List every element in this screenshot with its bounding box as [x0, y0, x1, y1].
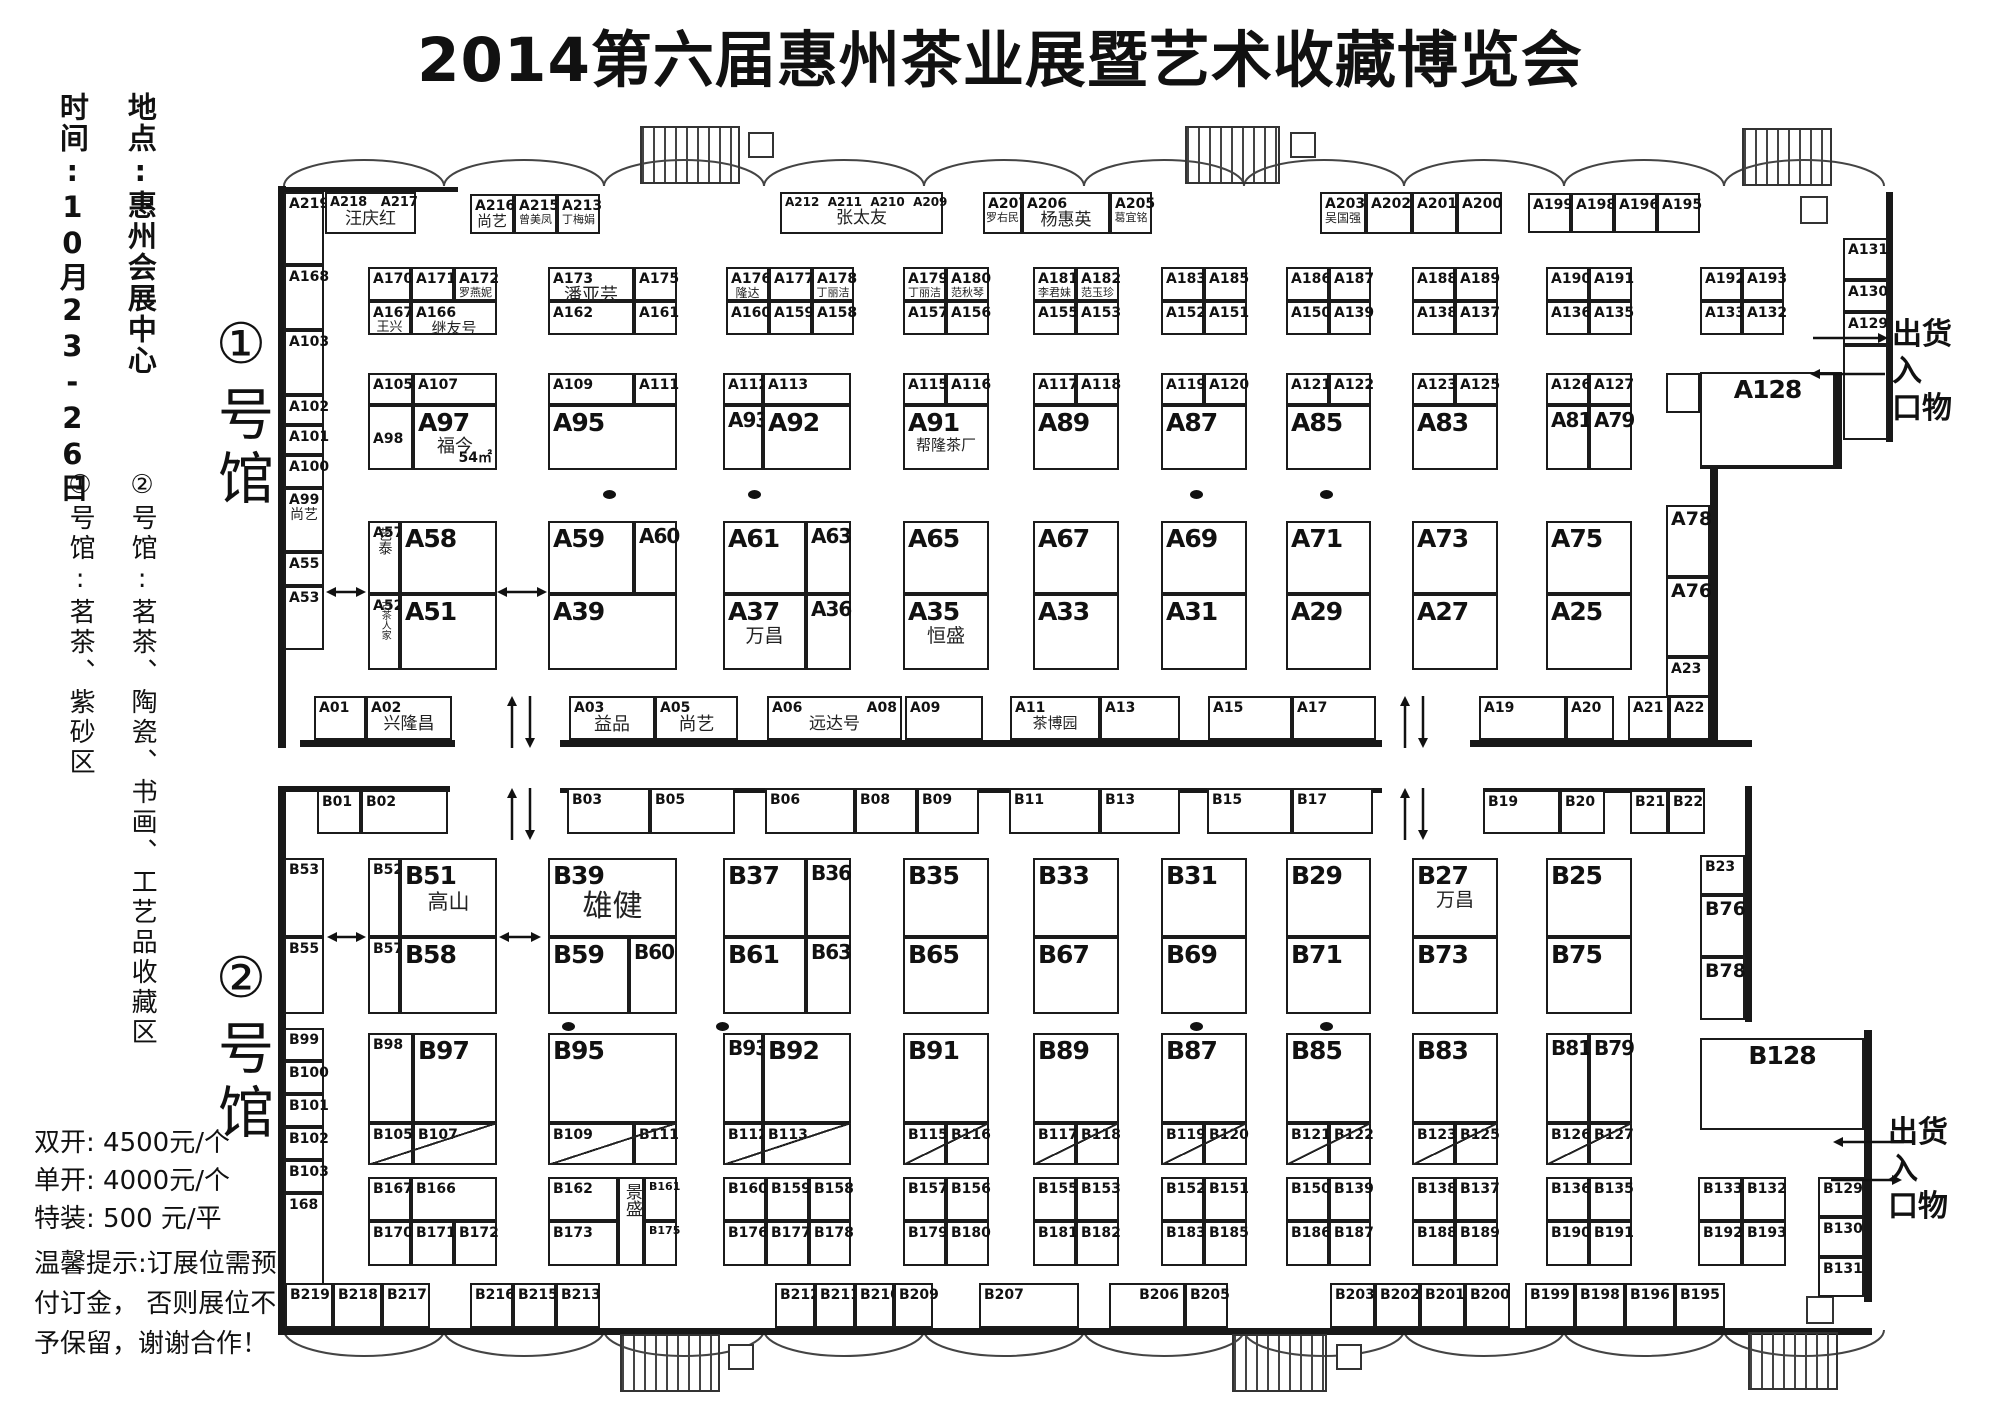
booth-B135: B135 [1589, 1177, 1632, 1221]
booth-A137: A137 [1455, 301, 1498, 335]
booth-B85: B85 [1286, 1033, 1371, 1123]
booth-B115: B115 [903, 1123, 946, 1165]
booth-B23: B23 [1700, 855, 1745, 895]
booth-A35: A35恒盛 [903, 594, 989, 670]
pillar-dot [603, 490, 616, 499]
booth-A177: A177 [769, 267, 812, 301]
booth-B53: B53 [284, 858, 324, 937]
booth-B105: B105 [368, 1123, 413, 1165]
elevator-icon [1806, 1296, 1834, 1324]
booth-B19: B19 [1483, 790, 1560, 834]
booth-A155: A155 [1033, 301, 1076, 335]
booth-A161: A161 [634, 301, 677, 335]
booth-A151: A151 [1204, 301, 1247, 335]
booth-A69: A69 [1161, 521, 1247, 594]
booth-B113: B113 [763, 1123, 851, 1165]
stairs-icon [1748, 1332, 1838, 1390]
booth-B51: B51高山 [400, 858, 497, 937]
booth-B132: B132 [1742, 1177, 1786, 1221]
booth-B111: B111 [634, 1123, 677, 1165]
booking-notice: 温馨提示:订展位需预 付订金， 否则展位不 予保留，谢谢合作！ [34, 1244, 277, 1364]
booth-A201: A201 [1412, 192, 1457, 234]
booth-B75: B75 [1546, 937, 1632, 1014]
booth-A138: A138 [1412, 301, 1455, 335]
booth-A182: A182范玉珍 [1076, 267, 1119, 301]
booth-empty [1666, 373, 1700, 413]
booth-B182: B182 [1076, 1221, 1119, 1266]
booth-empty [1843, 345, 1888, 440]
booth-A189: A189 [1455, 267, 1498, 301]
booth-B33: B33 [1033, 858, 1119, 937]
booth-B210: B210 [855, 1283, 894, 1328]
booth-A52: A52古茶人家 [368, 594, 400, 670]
booth-B83: B83 [1412, 1033, 1498, 1123]
booth-A09: A09 [905, 696, 983, 740]
booth-B138: B138 [1412, 1177, 1455, 1221]
booth-A23: A23 [1666, 657, 1710, 697]
booth-A126: A126 [1546, 373, 1589, 405]
booth-B179: B179 [903, 1221, 946, 1266]
pillar-dot [1320, 1022, 1333, 1031]
booth-B29: B29 [1286, 858, 1371, 937]
booth-B133: B133 [1698, 1177, 1742, 1221]
booth-A71: A71 [1286, 521, 1371, 594]
booth-A05: A05尚艺 [655, 696, 738, 740]
booth-B213: B213 [556, 1283, 600, 1328]
booth-A175: A175 [634, 267, 677, 301]
booth-B15: B15 [1207, 788, 1292, 834]
booth-A85: A85 [1286, 405, 1371, 470]
booth-B186: B186 [1286, 1221, 1329, 1266]
booth-B206: B206 [1109, 1283, 1185, 1328]
booth-A99: A99尚艺 [284, 488, 324, 552]
booth-A51: A51 [400, 594, 497, 670]
booth-B67: B67 [1033, 937, 1119, 1014]
booth-A206: A206杨惠英 [1022, 192, 1110, 234]
booth-B217: B217 [382, 1283, 430, 1328]
wall [560, 740, 1382, 747]
booth-A160: A160 [726, 301, 769, 335]
pillar-dot [1190, 490, 1203, 499]
booth-B178: B178 [809, 1221, 851, 1266]
booth-B211: B211 [815, 1283, 855, 1328]
booth-B11: B11 [1009, 788, 1100, 834]
booth-A212: A212 A211 A210 A209张太友 [780, 192, 943, 234]
booth-A87: A87 [1161, 405, 1247, 470]
price-special: 特装: 500 元/平 [34, 1200, 230, 1238]
wall [1835, 372, 1842, 469]
booth-B58: B58 [400, 937, 497, 1014]
booth-A39: A39 [548, 594, 677, 670]
booth-A61: A61 [723, 521, 806, 594]
booth-A123: A123 [1412, 373, 1455, 405]
wall [1710, 462, 1718, 747]
booth-B158: B158 [809, 1177, 851, 1221]
booth-B95: B95 [548, 1033, 677, 1123]
booth-B109: B109 [548, 1123, 634, 1165]
booth-B13: B13 [1100, 788, 1180, 834]
booth-A17: A17 [1292, 696, 1376, 740]
booth-A63: A63 [806, 521, 851, 594]
booth-B127: B127 [1589, 1123, 1632, 1165]
booth-B91: B91 [903, 1033, 989, 1123]
booth-B137: B137 [1455, 1177, 1498, 1221]
booth-A11: A11茶博园 [1010, 696, 1100, 740]
booth-B216: B216 [470, 1283, 513, 1328]
booth-B190: B190 [1546, 1221, 1589, 1266]
booth-A191: A191 [1589, 267, 1632, 301]
pillar-dot [716, 1022, 729, 1031]
stairs-icon [640, 126, 740, 184]
booth-A93: A93 [723, 405, 763, 470]
booth-A102: A102 [284, 395, 324, 425]
booth-B215: B215 [513, 1283, 556, 1328]
stairs-icon [1185, 126, 1280, 184]
booth-A20: A20 [1566, 696, 1614, 740]
booth-A83: A83 [1412, 405, 1498, 470]
booth-A58: A58 [400, 521, 497, 594]
booth-A95: A95 [548, 405, 677, 470]
booth-B153: B153 [1076, 1177, 1119, 1221]
booth-A192: A192 [1700, 267, 1742, 301]
booth-A176: A176隆达 [726, 267, 769, 301]
booth-B60: B60 [629, 937, 677, 1014]
booth-A29: A29 [1286, 594, 1371, 670]
booth-A162: A162 [548, 301, 634, 335]
booth-B63: B63 [806, 937, 851, 1014]
booth-A36: A36 [806, 594, 851, 670]
booth-A21: A21 [1628, 696, 1669, 740]
booth-B188: B188 [1412, 1221, 1455, 1266]
booth-A55: A55 [284, 552, 324, 586]
booth-B119: B119 [1161, 1123, 1204, 1165]
booth-A135: A135 [1589, 301, 1632, 335]
booth-B219: B219 [285, 1283, 333, 1328]
booth-B136: B136 [1546, 1177, 1589, 1221]
booth-A25: A25 [1546, 594, 1632, 670]
booth-A125: A125 [1455, 373, 1498, 405]
booth-A107: A107 [413, 373, 497, 405]
booth-B201: B201 [1420, 1283, 1465, 1328]
booth-A139: A139 [1329, 301, 1371, 335]
pillar-dot [562, 1022, 575, 1031]
cargo-entrance-sign-top: 出货 入 口物 [1892, 316, 1952, 427]
direction-arrow [1810, 366, 1886, 382]
cargo-entrance-sign-bottom: 出货 入 口物 [1888, 1114, 1948, 1225]
booth-B102: B102 [284, 1127, 324, 1160]
booth-A183: A183 [1161, 267, 1204, 301]
booth-B183: B183 [1161, 1221, 1204, 1266]
hall1-description: ①号馆:茗茶、紫砂区 [66, 470, 94, 778]
page-title: 2014第六届惠州茶业展暨艺术收藏博览会 [180, 10, 1820, 99]
booth-A200: A200 [1457, 192, 1502, 234]
booth-B31: B31 [1161, 858, 1247, 937]
booth-A115: A115 [903, 373, 946, 405]
hall2-description: ②号馆:茗茶、陶瓷、书画、工艺品收藏区 [128, 470, 156, 1048]
price-single: 单开: 4000元/个 [34, 1162, 230, 1200]
booth-B103: B103 [284, 1160, 324, 1193]
booth-B139: B139 [1329, 1177, 1371, 1221]
booth-A81: A81 [1546, 405, 1589, 470]
booth-B76: B76 [1700, 895, 1745, 957]
booth-B09: B09 [917, 788, 979, 834]
booth-A202: A202 [1366, 192, 1412, 234]
booth-A167: A167王兴 [368, 301, 411, 335]
booth-A136: A136 [1546, 301, 1589, 335]
booth-A199: A199 [1528, 193, 1571, 233]
booth-A13: A13 [1100, 696, 1180, 740]
booth-A185: A185 [1204, 267, 1247, 301]
booth-B176: B176 [723, 1221, 766, 1266]
booth-B181: B181 [1033, 1221, 1076, 1266]
booth-B193: B193 [1742, 1221, 1786, 1266]
booth-B69: B69 [1161, 937, 1247, 1014]
booth-B180: B180 [946, 1221, 989, 1266]
booth-B157: B157 [903, 1177, 946, 1221]
booth-B17: B17 [1292, 788, 1373, 834]
booth-A03: A03益品 [569, 696, 655, 740]
booth-B191: B191 [1589, 1221, 1632, 1266]
booth-B155: B155 [1033, 1177, 1076, 1221]
booth-B117: B117 [1033, 1123, 1076, 1165]
elevator-icon [728, 1344, 754, 1370]
booth-A112: A112 [723, 373, 763, 405]
wall [284, 1328, 1872, 1335]
booth-B121: B121 [1286, 1123, 1329, 1165]
booth-A193: A193 [1742, 267, 1784, 301]
booth-A91: A91帮隆茶厂 [903, 405, 989, 470]
booth-B123: B123 [1412, 1123, 1455, 1165]
booth-A89: A89 [1033, 405, 1119, 470]
booth-A75: A75 [1546, 521, 1632, 594]
booth-A33: A33 [1033, 594, 1119, 670]
booth-B126: B126 [1546, 1123, 1589, 1165]
booth-A180: A180范秋琴 [946, 267, 989, 301]
booth-B196: B196 [1625, 1283, 1675, 1328]
booth-A76: A76 [1666, 577, 1710, 657]
booth-A31: A31 [1161, 594, 1247, 670]
aisle-arrows [505, 788, 539, 840]
booth-B187: B187 [1329, 1221, 1371, 1266]
booth-A116: A116 [946, 373, 989, 405]
hall2-label: ②号馆 [210, 946, 270, 1147]
booth-B22: B22 [1668, 790, 1705, 834]
booth-B57: B57 [368, 937, 400, 1014]
booth-B99: B99 [284, 1028, 324, 1061]
wall [1745, 786, 1752, 1022]
booth-A190: A190 [1546, 267, 1589, 301]
booth-A59: A59 [548, 521, 634, 594]
booth-A215: A215曾美凤 [514, 194, 557, 234]
booth-B175: B175 [644, 1221, 677, 1266]
booth-A117: A117 [1033, 373, 1076, 405]
price-double: 双开: 4500元/个 [34, 1124, 230, 1162]
booth-A205: A205葛宜铭 [1110, 192, 1152, 234]
booth-B55: B55 [284, 937, 324, 1014]
booth-A19: A19 [1479, 696, 1566, 740]
booth-B131: B131 [1818, 1257, 1864, 1297]
booth-B151: B151 [1204, 1177, 1247, 1221]
floorplan-canvas: 2014第六届惠州茶业展暨艺术收藏博览会 时间:10月23-26日 地点:惠州会… [0, 0, 2000, 1418]
booth-A101: A101 [284, 425, 324, 455]
booth-A168: A168 [284, 265, 324, 330]
booth-B79: B79 [1589, 1033, 1632, 1123]
booth-A57: A57艺泰 [368, 521, 400, 594]
booth-B25: B25 [1546, 858, 1632, 937]
booth-A173: A173潘亚芸 [548, 267, 634, 301]
aisle-arrows [1398, 696, 1432, 748]
booth-B122: B122 [1329, 1123, 1371, 1165]
booth-A118: A118 [1076, 373, 1119, 405]
booth-B61: B61 [723, 937, 806, 1014]
booth-A187: A187 [1329, 267, 1371, 301]
booth-B118: B118 [1076, 1123, 1119, 1165]
booth-B08: B08 [855, 788, 917, 834]
elevator-icon [1336, 1344, 1362, 1370]
booth-A109: A109 [548, 373, 634, 405]
event-time: 时间:10月23-26日 [56, 92, 87, 504]
booth-A188: A188 [1412, 267, 1455, 301]
booth-B107: B107 [413, 1123, 497, 1165]
booth-B21: B21 [1630, 790, 1668, 834]
aisle-arrows [1398, 788, 1432, 840]
booth-A60: A60 [634, 521, 677, 594]
booth-B71: B71 [1286, 937, 1371, 1014]
booth-A73: A73 [1412, 521, 1498, 594]
direction-arrow [326, 584, 366, 600]
direction-arrow [499, 929, 541, 945]
booth-A131: A131 [1843, 238, 1888, 280]
booth-B116: B116 [946, 1123, 989, 1165]
booth-A79: A79 [1589, 405, 1632, 470]
booth-B185: B185 [1204, 1221, 1247, 1266]
booth-B02: B02 [361, 790, 448, 834]
booth-A121: A121 [1286, 373, 1329, 405]
booth-B166: B166 [411, 1177, 497, 1221]
booth-B01: B01 [317, 790, 361, 834]
price-list: 双开: 4500元/个 单开: 4000元/个 特装: 500 元/平 [34, 1124, 230, 1238]
pillar-dot [1190, 1022, 1203, 1031]
booth-B170: B170 [368, 1221, 411, 1266]
booth-B93: B93 [723, 1033, 763, 1123]
direction-arrow [497, 584, 547, 600]
booth-B200: B200 [1465, 1283, 1510, 1328]
booth-A195: A195 [1657, 193, 1700, 233]
booth-B189: B189 [1455, 1221, 1498, 1266]
booth-B20: B20 [1560, 790, 1605, 834]
stairs-icon [1232, 1334, 1327, 1392]
booth-A181: A181李君妹 [1033, 267, 1076, 301]
booth-A186: A186 [1286, 267, 1329, 301]
booth-A113: A113 [763, 373, 851, 405]
booth-A15: A15 [1208, 696, 1292, 740]
stairs-icon [620, 1334, 720, 1392]
booth-B101: B101 [284, 1094, 324, 1127]
booth-B65: B65 [903, 937, 989, 1014]
booth-B162: B162 [548, 1177, 618, 1221]
booth-A37: A37万昌 [723, 594, 806, 670]
pillar-dot [748, 490, 761, 499]
booth-168: 168 [284, 1193, 324, 1288]
booth-A120: A120 [1204, 373, 1247, 405]
booth-B130: B130 [1818, 1217, 1864, 1257]
booth-A67: A67 [1033, 521, 1119, 594]
booth-A100: A100 [284, 455, 324, 488]
aisle-arrows [505, 696, 539, 748]
booth-A179: A179丁丽洁 [903, 267, 946, 301]
booth-A153: A153 [1076, 301, 1119, 335]
booth-A203: A203吴国强 [1320, 192, 1366, 234]
booth-B205: B205 [1185, 1283, 1228, 1328]
booth-B203: B203 [1330, 1283, 1375, 1328]
booth-A150: A150 [1286, 301, 1329, 335]
booth-B120: B120 [1204, 1123, 1247, 1165]
booth-B209: B209 [894, 1283, 933, 1328]
booth-A98: A98 [368, 405, 413, 470]
booth-B125: B125 [1455, 1123, 1498, 1165]
booth-A132: A132 [1742, 301, 1784, 335]
booth-B35: B35 [903, 858, 989, 937]
booth-B36: B36 [806, 858, 851, 937]
booth-B27: B27万昌 [1412, 858, 1498, 937]
booth-A170: A170 [368, 267, 411, 301]
booth-B195: B195 [1675, 1283, 1725, 1328]
direction-arrow [1812, 330, 1888, 346]
booth-B167: B167 [368, 1177, 411, 1221]
booth-B173: B173 [548, 1221, 618, 1266]
booth-A216: A216尚艺 [470, 194, 514, 234]
elevator-icon [748, 132, 774, 158]
booth-B112: B112 [723, 1123, 763, 1165]
booth-A178: A178丁丽洁 [812, 267, 854, 301]
booth-A130: A130 [1843, 280, 1888, 312]
booth-A219: A219 [284, 192, 324, 265]
booth-B161: B161 [644, 1177, 677, 1221]
booth-A218: A218 A217汪庆红 [325, 192, 416, 234]
booth-B52: B52 [368, 858, 400, 937]
direction-arrow [327, 929, 366, 945]
elevator-icon [1800, 196, 1828, 224]
elevator-icon [1290, 132, 1316, 158]
booth-A213: A213丁梅娟 [557, 194, 600, 234]
wall [300, 740, 455, 747]
booth-A157: A157 [903, 301, 946, 335]
booth-B97: B97 [413, 1033, 497, 1123]
booth-B87: B87 [1161, 1033, 1247, 1123]
booth-B156: B156 [946, 1177, 989, 1221]
booth-B81: B81 [1546, 1033, 1589, 1123]
booth-A103: A103 [284, 330, 324, 395]
booth-B199: B199 [1525, 1283, 1575, 1328]
booth-A105: A105 [368, 373, 413, 405]
hall1-label: ①号馆 [210, 312, 270, 513]
booth-A159: A159 [769, 301, 812, 335]
booth-A156: A156 [946, 301, 989, 335]
booth-A171: A171 [411, 267, 454, 301]
booth-B177: B177 [766, 1221, 809, 1266]
booth-B150: B150 [1286, 1177, 1329, 1221]
booth-A127: A127 [1589, 373, 1632, 405]
booth-A196: A196 [1614, 193, 1657, 233]
booth-B73: B73 [1412, 937, 1498, 1014]
booth-B159: B159 [766, 1177, 809, 1221]
stairs-icon [1742, 128, 1832, 186]
booth-B78: B78 [1700, 957, 1745, 1020]
booth-B05: B05 [650, 788, 735, 834]
booth-B98: B98 [368, 1033, 413, 1123]
booth-A92: A92 [763, 405, 851, 470]
booth-B06: B06 [765, 788, 855, 834]
